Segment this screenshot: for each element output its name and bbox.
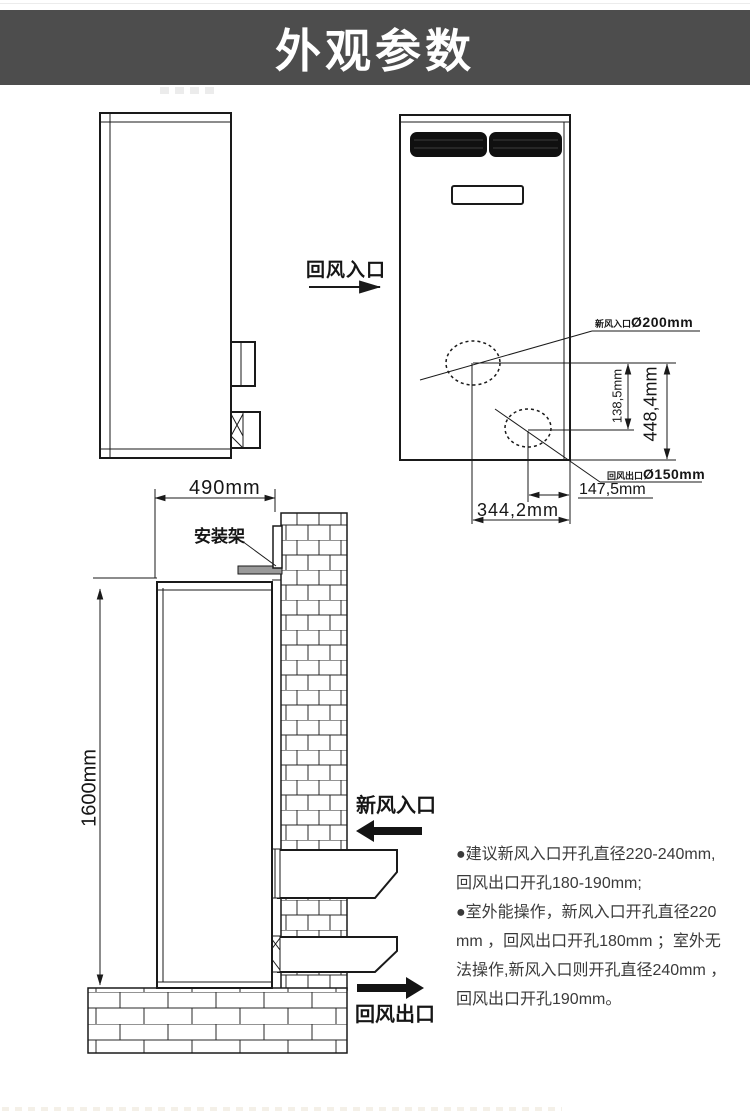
brick-wall-mid xyxy=(281,898,347,937)
dim-138-5: 138,5mm xyxy=(610,369,625,423)
fresh-air-flow-arrow xyxy=(356,820,422,842)
return-air-hole-name: 回风出口 xyxy=(607,471,643,481)
brick-floor xyxy=(88,988,347,1053)
grille-right xyxy=(489,132,562,157)
lower-duct-stub xyxy=(231,412,260,448)
mounting-bracket-plate xyxy=(273,526,282,568)
bracket-label: 安装架 xyxy=(194,522,245,547)
front-view-body xyxy=(400,115,570,460)
return-air-outlet-label: 回风出口 xyxy=(355,998,435,1027)
note-line: ●建议新风入口开孔直径220-240mm, xyxy=(456,840,716,869)
dim-147-5: 147,5mm xyxy=(579,481,646,499)
note-line: 法操作,新风入口则开孔直径240mm ， xyxy=(456,956,716,985)
product-spec-page: 外观参数 xyxy=(0,0,750,1115)
return-air-inlet-label: 回风入口 xyxy=(306,255,386,282)
note-line: 回风出口开孔180-190mm; xyxy=(456,869,716,898)
return-air-hole-diameter: Ø150mm xyxy=(643,466,705,482)
note-line: mm ，回风出口开孔180mm ；室外无 xyxy=(456,927,716,956)
upper-duct-stub xyxy=(231,342,255,386)
fresh-air-hole-label: 新风入口Ø200mm xyxy=(595,314,693,332)
dim-448-4: 448,4mm xyxy=(641,366,662,441)
note-line: 回风出口开孔190mm。 xyxy=(456,985,716,1014)
return-air-flow-arrow xyxy=(357,977,424,999)
cropped-footer-text-strip xyxy=(2,1107,562,1111)
install-view-drawing xyxy=(88,489,424,1053)
fresh-air-inlet-label: 新风入口 xyxy=(356,789,436,818)
dim-1600: 1600mm xyxy=(79,749,102,827)
installation-notes: ●建议新风入口开孔直径220-240mm, 回风出口开孔180-190mm; ●… xyxy=(456,840,716,1014)
front-view-drawing xyxy=(400,115,570,460)
fresh-air-hole-diameter: Ø200mm xyxy=(631,314,693,330)
note-line: ●室外能操作，新风入口开孔直径220 xyxy=(456,898,716,927)
bracket-leader-line xyxy=(242,541,276,566)
side-view-body xyxy=(100,113,231,458)
grille-left xyxy=(410,132,487,157)
fresh-air-hole-name: 新风入口 xyxy=(595,319,631,329)
return-air-duct xyxy=(278,937,397,972)
side-view-drawing xyxy=(100,113,260,458)
dim-490: 490mm xyxy=(189,477,261,500)
display-window xyxy=(452,186,523,204)
unit-side-body xyxy=(157,582,272,988)
dim-344-2: 344,2mm xyxy=(477,500,559,521)
brick-wall-upper xyxy=(281,513,347,850)
fresh-air-duct xyxy=(278,850,397,898)
